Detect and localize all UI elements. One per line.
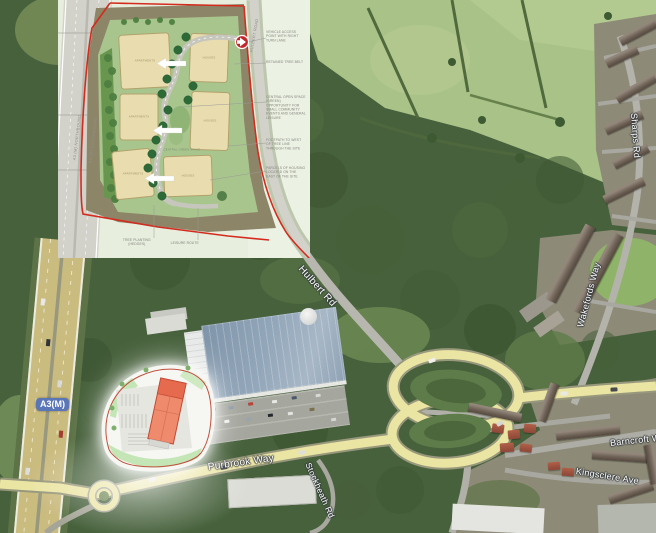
parked-car [315, 394, 320, 398]
store-site-plan-overlay [88, 356, 222, 482]
parcel-label: APARTMENTS [129, 116, 149, 119]
plan-annotation: TREE PLANTING (HEDGES) [120, 238, 154, 246]
parcel-label: APARTMENTS [135, 60, 155, 63]
bottom-right-building [451, 504, 544, 533]
parcel-label: APARTMENTS [123, 173, 143, 176]
parked-car [288, 412, 293, 416]
parked-car [309, 408, 314, 412]
red-roof-house [500, 443, 515, 453]
plan-annotation: CENTRAL OPEN SPACE (GREEN) OPPORTUNITY F… [266, 95, 306, 120]
red-roof-house [524, 423, 537, 433]
parked-car [248, 402, 253, 406]
plan-annotation: PARCELS OF HOUSING LOCATED ON THE EAST O… [266, 166, 306, 179]
warehouse-building [227, 475, 316, 509]
parcel-label: HOUSES [182, 175, 195, 178]
a3m-motorway-shield[interactable]: A3(M) [36, 398, 69, 411]
store-plan-drawing [88, 356, 222, 482]
corner-building [597, 503, 656, 533]
rooftop-dome [300, 308, 317, 325]
parked-car [268, 413, 273, 417]
red-roof-house [548, 461, 561, 470]
parked-car [228, 406, 233, 410]
parcel-label: HOUSES [203, 57, 216, 60]
central-green-label: CENTRAL GREEN SPACE [164, 149, 201, 152]
plan-annotation: FOOTPATH TO WEST OF TREE LINE THROUGH TH… [266, 138, 306, 151]
car [610, 387, 617, 391]
satellite-map[interactable]: A3(M) Hulbert Rd Purbrook Way Wakefords … [0, 0, 656, 533]
red-roof-house [562, 468, 575, 477]
parked-car [292, 396, 297, 400]
parcel-label: HOUSES [204, 120, 217, 123]
plan-annotation: LEISURE ROUTE [170, 241, 199, 245]
parked-car [246, 418, 251, 422]
red-roof-house [508, 429, 521, 439]
plan-annotation: RETAINED TREE BELT [266, 60, 306, 64]
parked-car [272, 400, 277, 404]
plan-annotation: VEHICLE ACCESS POINT WITH RIGHT TURN LAN… [266, 30, 306, 43]
parked-car [224, 420, 229, 424]
parked-car [331, 418, 336, 422]
masterplan-overlay: A3 (M) NORTHBOUND A3 (M) SOUTHBOUND HULB… [58, 0, 310, 258]
red-roof-house [520, 443, 533, 452]
car [560, 391, 567, 395]
vehicle-access-icon [236, 36, 249, 49]
